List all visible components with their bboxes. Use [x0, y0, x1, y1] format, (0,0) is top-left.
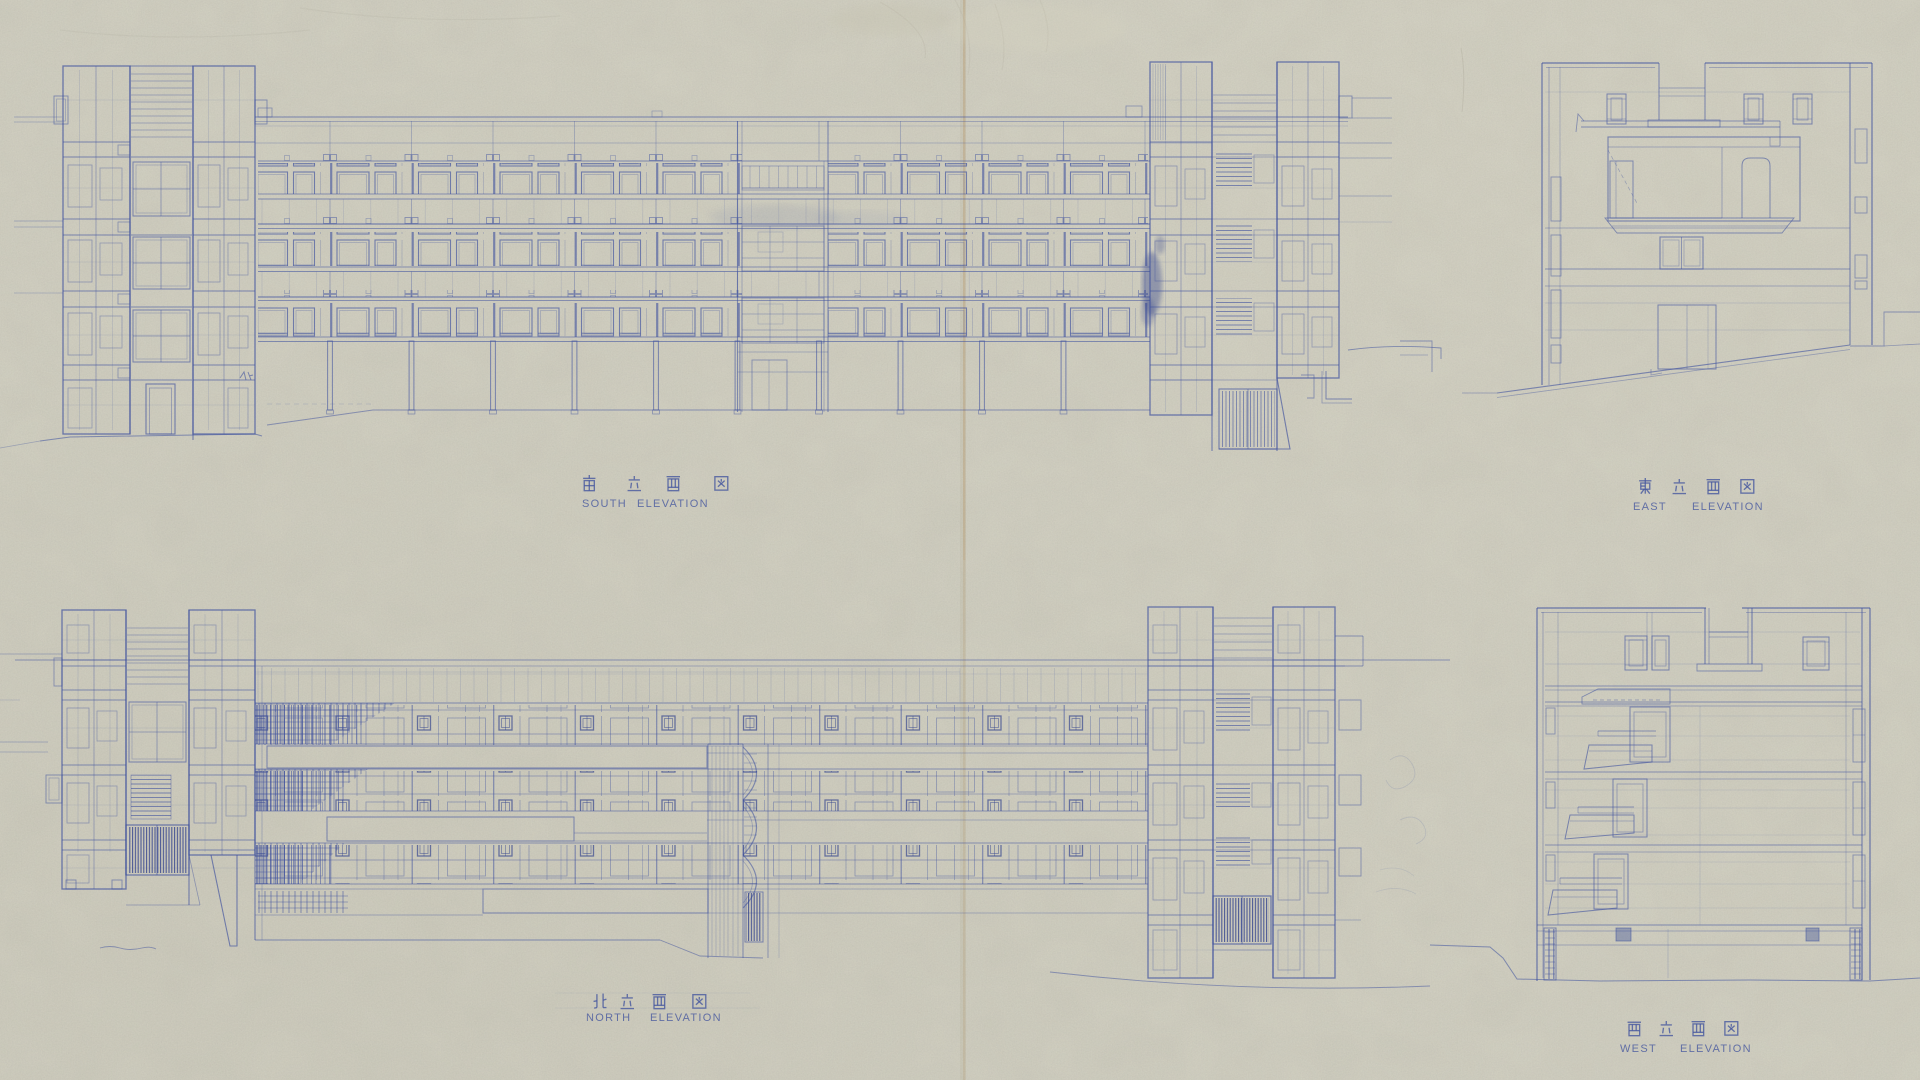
- svg-text:ELEVATION: ELEVATION: [1692, 501, 1764, 513]
- svg-text:ELEVATION: ELEVATION: [637, 498, 709, 510]
- svg-text:ELEVATION: ELEVATION: [650, 1012, 722, 1024]
- svg-text:NORTH: NORTH: [586, 1012, 631, 1024]
- svg-text:EAST: EAST: [1633, 501, 1667, 513]
- svg-text:ELEVATION: ELEVATION: [1680, 1043, 1752, 1055]
- svg-text:SOUTH: SOUTH: [582, 498, 627, 510]
- svg-text:WEST: WEST: [1620, 1043, 1657, 1055]
